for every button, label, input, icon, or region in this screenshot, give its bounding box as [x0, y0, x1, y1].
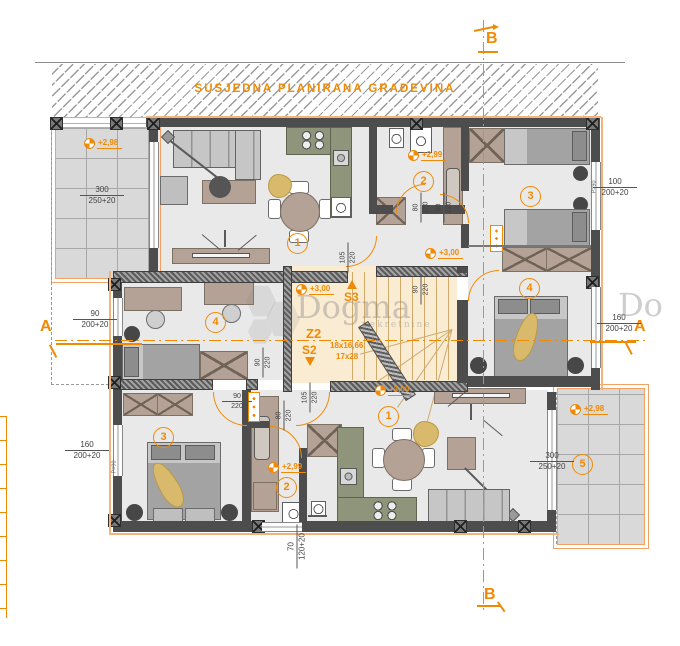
wall-living-right [547, 510, 556, 522]
tv-ray [470, 404, 472, 420]
desk-chair [146, 310, 165, 329]
pillow [530, 299, 560, 314]
wall-top [146, 118, 600, 127]
stair-flight-label: 18x16,66 [330, 341, 363, 350]
room-divider-line [468, 245, 591, 247]
site-boundary-line [35, 62, 625, 63]
parapet-label: P=90 [112, 461, 118, 474]
pillow [572, 212, 587, 242]
door-dimension: 105220 [302, 383, 319, 413]
overhang-dashed-bottom [51, 384, 114, 385]
section-a-line [590, 341, 636, 343]
dining-chair [268, 199, 281, 219]
section-letter-b-top: B [486, 30, 498, 48]
wall-bedroom3-left [461, 127, 469, 191]
wardrobe [200, 351, 248, 380]
section-a-line [56, 343, 142, 345]
column [454, 520, 467, 533]
nightstand [470, 357, 487, 374]
wall-bath-top [249, 421, 269, 428]
door-dimension: 90220 [222, 393, 252, 410]
section-tick [497, 601, 505, 612]
section-letter-a-left: A [40, 318, 52, 336]
room-number: 1 [378, 406, 399, 427]
level-marker-icon [268, 462, 279, 473]
section-letter-b-bottom: B [484, 586, 496, 604]
level-marker: +2,99 [268, 462, 306, 473]
door-dimension: 80220 [276, 401, 293, 431]
door-dimension: 90220 [255, 348, 272, 378]
wall-hall-right [457, 300, 468, 383]
level-marker: +2,98 [84, 138, 122, 149]
sink-icon [340, 468, 357, 485]
door-dimension: 105220 [340, 243, 357, 273]
level-marker: +2,98 [570, 404, 608, 415]
column [50, 117, 63, 130]
wardrobe [123, 393, 159, 416]
watermark-subtitle: nekretnine [362, 320, 432, 330]
room-number: 4 [205, 312, 226, 333]
wall-bath-bottom [369, 205, 393, 214]
tv-screen [192, 253, 250, 258]
door-dimension: 90220 [436, 193, 453, 223]
stove-icon [299, 130, 327, 150]
pillow [124, 347, 139, 377]
floor-plan-screenshot: { "colors":{"accent":"#f08a05","wall":"#… [0, 0, 680, 646]
room-number: 3 [520, 186, 541, 207]
parapet-label: P=90 [592, 181, 598, 194]
wardrobe [502, 247, 548, 272]
wall-kitchen-partition [369, 127, 377, 207]
armchair [447, 437, 476, 470]
wall-hall-right-jamb [457, 267, 468, 273]
door-dimension: 90220 [413, 275, 430, 305]
window-dimension: 300250+20 [530, 452, 574, 471]
pillow [498, 299, 528, 314]
room-number: 2 [276, 477, 297, 498]
wall-jamb [246, 379, 258, 390]
wall-bedroom4-bottom [468, 376, 591, 387]
toilet-icon [389, 128, 404, 148]
level-marker-icon [84, 138, 95, 149]
column [110, 117, 123, 130]
desk-chair [209, 176, 231, 198]
armchair [160, 176, 188, 205]
section-tick [625, 342, 632, 354]
door-dimension: 80220 [413, 193, 430, 223]
sink-icon [311, 501, 326, 516]
window-dimension: 100200+20 [593, 178, 637, 197]
room-number: 5 [572, 454, 593, 475]
level-marker: +3,00 [425, 248, 463, 259]
nightstand [573, 166, 588, 181]
section-line-b [483, 20, 484, 610]
watermark-partial: Do [618, 286, 663, 324]
neighbor-building-hatch: SUSJEDNA PLANIRANA GRAĐEVINA [52, 64, 598, 118]
edge-balcony-strip [0, 416, 7, 618]
wardrobe [546, 247, 592, 272]
wall-bottom [113, 521, 262, 532]
tv-ray [224, 230, 226, 247]
wall-living-right [547, 392, 556, 410]
window-dimension: 160200+20 [65, 441, 109, 460]
wall-bath-right [299, 448, 307, 522]
level-marker: +3,00 [375, 385, 413, 396]
bed-bench [185, 508, 215, 522]
room-number: 1 [287, 233, 308, 254]
stove-icon [370, 500, 400, 521]
room-number: 3 [153, 427, 174, 448]
column [147, 117, 160, 130]
wall-bedroom3-top [113, 379, 213, 390]
bed-bench [153, 508, 183, 522]
window [149, 142, 159, 248]
level-marker-icon [425, 248, 436, 259]
nightstand [221, 504, 238, 521]
stair-down-icon [305, 357, 315, 366]
stair-label-z2: Z2 [306, 326, 321, 341]
radiator-icon [490, 225, 503, 252]
section-b-underline [477, 605, 501, 607]
level-marker-icon [570, 404, 581, 415]
wall-mid [113, 271, 348, 283]
window-dimension: 300250+20 [80, 186, 124, 205]
pillow [572, 131, 587, 161]
nightstand [567, 357, 584, 374]
stair-label-s2: S2 [302, 343, 317, 357]
sofa-chaise [235, 130, 261, 180]
room-number: 2 [413, 171, 434, 192]
level-marker: +2,99 [408, 150, 446, 161]
wall-right [591, 368, 600, 390]
nightstand [126, 504, 143, 521]
column [586, 117, 599, 130]
level-marker-icon [375, 385, 386, 396]
column [518, 520, 531, 533]
sink-stand [308, 515, 327, 517]
dishwasher-icon [331, 197, 351, 217]
wardrobe [469, 128, 505, 163]
column [410, 117, 423, 130]
section-b-underline [478, 51, 498, 53]
facade-contour [109, 533, 559, 535]
desk [124, 287, 182, 311]
level-marker-icon [408, 150, 419, 161]
room-number: 4 [519, 278, 540, 299]
section-arrow-icon [493, 24, 499, 30]
dining-table [280, 192, 320, 232]
sink-icon [333, 150, 349, 166]
window-dimension: 90200+20 [73, 310, 117, 329]
stair-riser-label: 17x28 [336, 352, 358, 361]
window-dimension: 70120+20 [288, 525, 307, 569]
facade-contour [601, 117, 603, 390]
wardrobe [157, 393, 193, 416]
neighbor-building-label: SUSJEDNA PLANIRANA GRAĐEVINA [52, 83, 598, 95]
toilet-block [253, 482, 277, 510]
sofa [428, 489, 510, 522]
pillow [185, 445, 215, 460]
facade-contour [146, 116, 601, 118]
